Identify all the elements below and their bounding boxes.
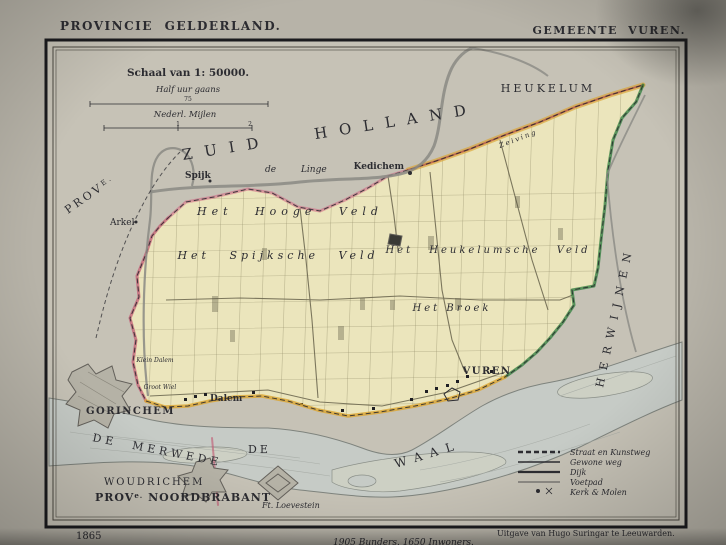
map-scan-page: PROVINCIE GELDERLAND. GEMEENTE VUREN. — [0, 0, 726, 545]
bottom-edge-shadow — [0, 528, 726, 545]
antique-map-svg: PROVINCIE GELDERLAND. GEMEENTE VUREN. — [0, 0, 726, 545]
corner-shadow — [0, 0, 726, 545]
